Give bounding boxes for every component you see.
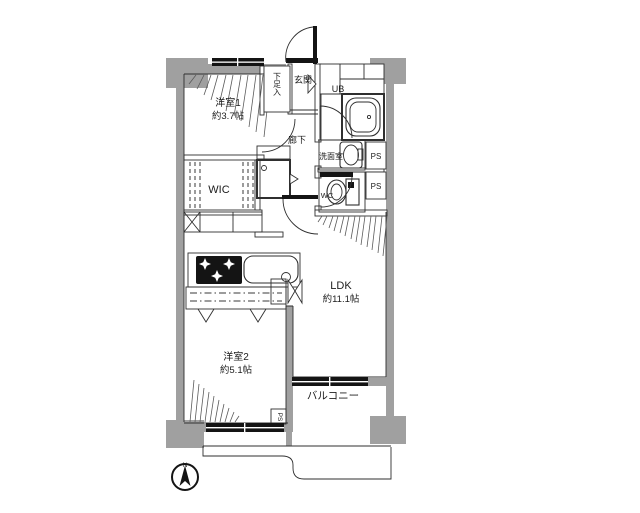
floor-plan-drawing: 洋室1 約3.7帖 WIC 下足入 玄関 廊下 UB 洗面室 WC PS PS … [0, 0, 640, 513]
wall-balcony-divider [286, 432, 292, 446]
window-split [329, 377, 330, 386]
column-bottom-right [370, 416, 406, 444]
label-ldk: LDK [330, 280, 352, 292]
label-unit-bath: UB [332, 84, 345, 94]
floor-plan-page: 洋室1 約3.7帖 WIC 下足入 玄関 廊下 UB 洗面室 WC PS PS … [0, 0, 640, 513]
label-bedroom2-size: 約5.1帖 [220, 364, 253, 376]
wall-bedroom1-corridor-upper [260, 66, 264, 115]
toilet-door-leaf [320, 172, 353, 177]
label-toilet: WC [321, 191, 334, 200]
label-balcony: バルコニー [307, 390, 359, 402]
label-hallway: 廊下 [288, 134, 306, 145]
label-ldk-size: 約11.1帖 [323, 293, 360, 305]
wall-left [176, 84, 184, 422]
wall-corridor-ldk [255, 232, 283, 237]
label-compass-north: N [183, 462, 188, 469]
label-pipe-space-3: PS [276, 413, 283, 422]
wall-bedroom1-wic [184, 155, 264, 160]
label-shoe-storage: 下足入 [273, 72, 282, 96]
window-split [237, 58, 238, 66]
label-bedroom2: 洋室2 [223, 350, 249, 363]
label-washroom: 洗面室 [319, 151, 343, 161]
label-pipe-space-2: PS [371, 182, 382, 191]
column-top-left [166, 58, 208, 88]
label-bedroom1: 洋室1 [215, 96, 241, 109]
column-bottom-left [166, 420, 204, 448]
label-bedroom1-size: 約3.7帖 [212, 110, 245, 122]
label-entrance: 玄関 [294, 74, 312, 85]
window-split [244, 423, 245, 432]
entrance-door-leaf [313, 26, 317, 64]
wall-wic-bottom [184, 210, 262, 215]
ldk-door-leaf [282, 195, 318, 199]
label-wic: WIC [208, 184, 229, 196]
wall-bedroom2-ldk [286, 306, 293, 432]
wall-right [386, 80, 394, 420]
label-pipe-space-1: PS [371, 152, 382, 161]
stove [196, 256, 242, 284]
wall-below-wc [315, 210, 387, 216]
